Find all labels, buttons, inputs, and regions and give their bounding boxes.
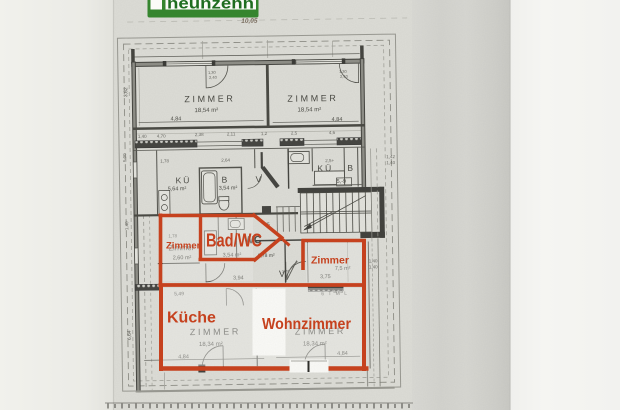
svg-text:neunzehn: neunzehn (167, 0, 254, 13)
